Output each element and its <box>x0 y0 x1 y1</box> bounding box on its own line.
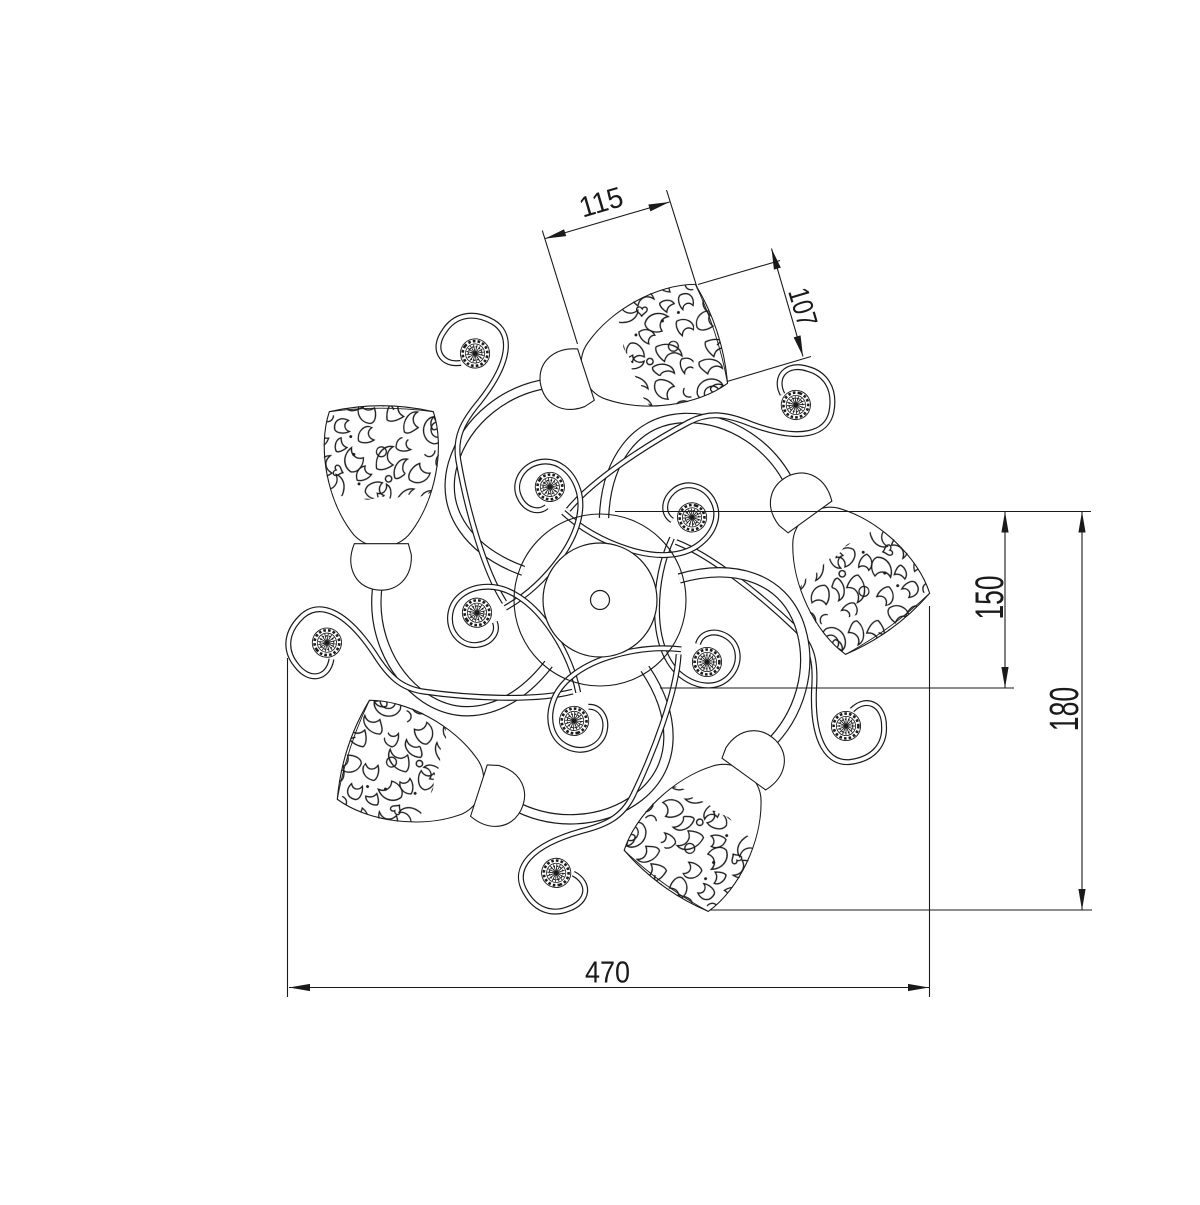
svg-text:470: 470 <box>585 956 630 990</box>
svg-text:180: 180 <box>1042 687 1087 731</box>
svg-text:150: 150 <box>968 575 1013 619</box>
